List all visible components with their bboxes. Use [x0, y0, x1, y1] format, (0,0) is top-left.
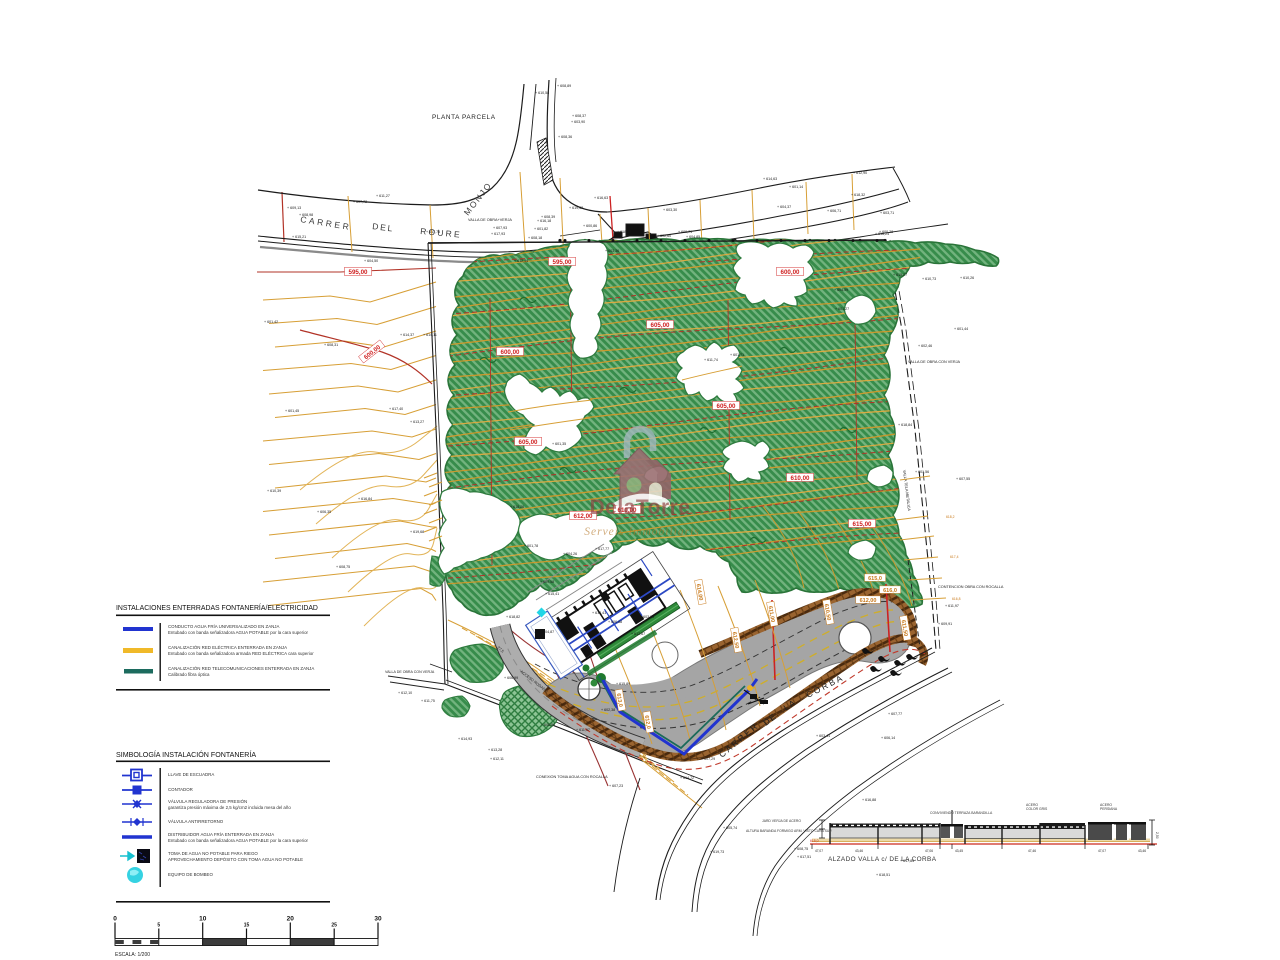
- svg-text:+ 608,89: + 608,89: [557, 84, 571, 88]
- svg-text:+ 604,85: + 604,85: [686, 235, 700, 239]
- svg-text:10: 10: [199, 916, 207, 923]
- svg-text:+ 612,34: + 612,34: [514, 259, 528, 263]
- svg-text:605,00: 605,00: [651, 322, 670, 329]
- svg-text:605,00: 605,00: [519, 439, 538, 446]
- svg-text:+ 601,35: + 601,35: [552, 442, 566, 446]
- svg-text:618,2: 618,2: [946, 515, 955, 519]
- svg-text:+ 612,11: + 612,11: [490, 757, 504, 761]
- svg-text:+ 616,84: + 616,84: [358, 497, 372, 501]
- svg-text:SIMBOLOGÍA INSTALACIÓN FONTANE: SIMBOLOGÍA INSTALACIÓN FONTANERÍA: [116, 750, 256, 759]
- svg-text:+ 604,59: + 604,59: [834, 288, 848, 292]
- svg-text:615,0: 615,0: [810, 839, 819, 843]
- svg-text:+ 603,41: + 603,41: [816, 734, 830, 738]
- svg-text:+ 604,50: + 604,50: [364, 259, 378, 263]
- svg-text:+ 607,93: + 607,93: [493, 226, 507, 230]
- svg-text:+ 615,89: + 615,89: [616, 682, 630, 686]
- svg-text:+ 616,18: + 616,18: [537, 219, 551, 223]
- svg-text:600,00: 600,00: [501, 349, 520, 356]
- svg-text:APROVECHAMIENTO DEPÓSITO CON T: APROVECHAMIENTO DEPÓSITO CON TOMA AGUA N…: [168, 857, 303, 862]
- svg-text:47,07: 47,07: [815, 849, 823, 853]
- svg-text:Entubado con banda señalizador: Entubado con banda señalizadora armada R…: [168, 651, 314, 656]
- svg-text:+ 600,86: + 600,86: [583, 224, 597, 228]
- svg-text:+ 617,75: + 617,75: [426, 230, 440, 234]
- svg-text:0: 0: [113, 916, 117, 923]
- svg-text:+ 614,93: + 614,93: [458, 737, 472, 741]
- svg-text:20: 20: [287, 916, 295, 923]
- svg-text:+ 618,51: + 618,51: [876, 873, 890, 877]
- svg-text:VÁLVULA REGULADORA DE PRESIÓN: VÁLVULA REGULADORA DE PRESIÓN: [168, 799, 247, 804]
- svg-text:+ 609,13: + 609,13: [287, 206, 301, 210]
- svg-text:+ 601,14: + 601,14: [789, 185, 803, 189]
- svg-text:+ 608,75: + 608,75: [794, 847, 808, 851]
- svg-text:617,4: 617,4: [950, 555, 959, 559]
- svg-text:garantiza presión máxima de 2,: garantiza presión máxima de 2,5 kg/cm2 i…: [168, 805, 291, 810]
- svg-text:+ 601,71: + 601,71: [730, 353, 744, 357]
- svg-text:CONTENCION OBRA CON ROCALLA: CONTENCION OBRA CON ROCALLA: [938, 585, 1004, 589]
- svg-text:CONDUCTO AGUA FRÍA UNIVERSALIZ: CONDUCTO AGUA FRÍA UNIVERSALIZADO EN ZAN…: [168, 624, 279, 629]
- svg-text:JARD VERJA DE ACERO: JARD VERJA DE ACERO: [762, 819, 801, 823]
- svg-text:25: 25: [331, 923, 337, 929]
- svg-text:595,00: 595,00: [349, 269, 368, 276]
- svg-text:TOMA DE AGUA NO POTABLE PARA R: TOMA DE AGUA NO POTABLE PARA RIEGO: [168, 851, 258, 856]
- svg-text:+ 606,35: + 606,35: [317, 510, 331, 514]
- svg-text:Calibrado fibra óptica: Calibrado fibra óptica: [168, 672, 210, 677]
- svg-text:+ 617,93: + 617,93: [491, 232, 505, 236]
- svg-text:VÁLVULA ANTIRRETORNO: VÁLVULA ANTIRRETORNO: [168, 819, 224, 824]
- svg-text:VALLA DE OBRA+VERJA: VALLA DE OBRA+VERJA: [468, 218, 512, 222]
- svg-text:Serveis Immobiliaris: Serveis Immobiliaris: [584, 526, 700, 538]
- svg-text:+ 603,90: + 603,90: [571, 120, 585, 124]
- svg-text:5: 5: [157, 923, 160, 929]
- svg-text:+ 608,75: + 608,75: [336, 565, 350, 569]
- svg-text:47,46: 47,46: [1028, 849, 1036, 853]
- svg-text:CANALIZACIÓN RED ELÉCTRICA ENT: CANALIZACIÓN RED ELÉCTRICA ENTERRADA EN …: [168, 645, 287, 650]
- svg-text:INSTALACIONES ENTERRADAS FONTA: INSTALACIONES ENTERRADAS FONTANERÍA/ELEC…: [116, 603, 318, 612]
- svg-text:+ 615,21: + 615,21: [292, 235, 306, 239]
- svg-text:+ 618,26: + 618,26: [510, 505, 524, 509]
- svg-text:+ 600,28: + 600,28: [879, 230, 893, 234]
- svg-text:CONTADOR: CONTADOR: [168, 787, 193, 792]
- svg-text:+ 611,75: + 611,75: [421, 699, 435, 703]
- svg-text:+ 603,71: + 603,71: [880, 211, 894, 215]
- svg-text:CONEXION TOMA AGUA CON ROCALLA: CONEXION TOMA AGUA CON ROCALLA: [536, 775, 608, 779]
- svg-text:43,45: 43,45: [955, 849, 963, 853]
- svg-text:+ 610,39: + 610,39: [267, 489, 281, 493]
- svg-text:+ 619,68: + 619,68: [410, 530, 424, 534]
- svg-text:+ 610,26: + 610,26: [960, 276, 974, 280]
- svg-text:595,00: 595,00: [553, 259, 572, 266]
- svg-text:+ 608,31: + 608,31: [324, 343, 338, 347]
- svg-text:+ 607,55: + 607,55: [956, 477, 970, 481]
- svg-text:+ 604,87: + 604,87: [540, 630, 554, 634]
- svg-text:+ 614,37: + 614,37: [400, 333, 414, 337]
- svg-text:+ 618,84: + 618,84: [898, 423, 912, 427]
- svg-text:+ 604,37: + 604,37: [777, 205, 791, 209]
- svg-text:+ 617,77: + 617,77: [595, 547, 609, 551]
- svg-text:+ 609,58: + 609,58: [540, 580, 554, 584]
- svg-text:+ 618,34: + 618,34: [617, 230, 631, 234]
- svg-text:VALLA DE OBRA CON VERJA: VALLA DE OBRA CON VERJA: [908, 360, 961, 364]
- svg-text:CANALIZACIÓN RED TELECOMUNICAC: CANALIZACIÓN RED TELECOMUNICACIONES ENTE…: [168, 666, 314, 671]
- svg-text:610,00: 610,00: [791, 475, 810, 482]
- svg-text:+ 602,38: + 602,38: [601, 708, 615, 712]
- svg-text:ALTURA BARANDA FORMIGO ARM. VI: ALTURA BARANDA FORMIGO ARM. VISTO CARA S…: [746, 829, 832, 833]
- svg-text:+ 606,99: + 606,99: [504, 676, 518, 680]
- svg-text:+ 607,72: + 607,72: [353, 200, 367, 204]
- svg-text:+ 612,10: + 612,10: [398, 691, 412, 695]
- svg-text:+ 614,41: + 614,41: [592, 611, 606, 615]
- svg-text:+ 602,46: + 602,46: [918, 344, 932, 348]
- svg-text:615,00: 615,00: [853, 521, 872, 528]
- svg-text:+ 618,82: + 618,82: [506, 615, 520, 619]
- svg-text:30: 30: [374, 916, 382, 923]
- svg-text:CONVIVIENDO TERRAZA BARANDILLA: CONVIVIENDO TERRAZA BARANDILLA: [930, 811, 993, 815]
- svg-text:+ 616,63: + 616,63: [594, 196, 608, 200]
- svg-text:+ 611,74: + 611,74: [704, 358, 718, 362]
- svg-text:+ 609,71: + 609,71: [678, 230, 692, 234]
- svg-text:+ 606,14: + 606,14: [881, 736, 895, 740]
- svg-text:+ 615,41: + 615,41: [545, 592, 559, 596]
- svg-text:+ 603,36: + 603,36: [605, 249, 619, 253]
- svg-text:+ 614,59: + 614,59: [628, 226, 642, 230]
- svg-text:+ 608,36: + 608,36: [558, 135, 572, 139]
- svg-text:616,0: 616,0: [883, 588, 897, 594]
- svg-text:Entubado con banda señalizador: Entubado con banda señalizadora AGUA POT…: [168, 630, 309, 635]
- svg-text:+ 608,18: + 608,18: [528, 236, 542, 240]
- svg-text:+ 614,63: + 614,63: [763, 177, 777, 181]
- svg-text:+ 612,67: + 612,67: [631, 632, 645, 636]
- svg-text:COLOR GRIS: COLOR GRIS: [1026, 807, 1048, 811]
- svg-text:+ 601,42: + 601,42: [264, 320, 278, 324]
- svg-text:+ 606,80: + 606,80: [541, 723, 555, 727]
- svg-text:+ 617,40: + 617,40: [389, 407, 403, 411]
- svg-text:+ 607,23: + 607,23: [609, 784, 623, 788]
- svg-text:+ 601,27: + 601,27: [835, 307, 849, 311]
- svg-text:+ 602,60: + 602,60: [657, 234, 671, 238]
- svg-text:605,00: 605,00: [717, 403, 736, 410]
- svg-text:+ 608,37: + 608,37: [572, 114, 586, 118]
- svg-text:2,50: 2,50: [1155, 832, 1159, 839]
- svg-text:15: 15: [244, 923, 250, 929]
- svg-text:+ 613,28: + 613,28: [488, 748, 502, 752]
- svg-text:+ 611,27: + 611,27: [376, 194, 390, 198]
- svg-text:+ 601,82: + 601,82: [534, 227, 548, 231]
- svg-text:+ 606,71: + 606,71: [827, 209, 841, 213]
- svg-text:+ 604,26: + 604,26: [563, 552, 577, 556]
- svg-text:+ 618,32: + 618,32: [851, 193, 865, 197]
- svg-text:+ 610,58: + 610,58: [535, 91, 549, 95]
- svg-text:+ 610,73: + 610,73: [922, 277, 936, 281]
- svg-text:+ 619,50: + 619,50: [802, 527, 816, 531]
- svg-text:DelaTorre: DelaTorre: [590, 496, 691, 519]
- svg-text:PERSIANA: PERSIANA: [1100, 807, 1118, 811]
- svg-text:47,06: 47,06: [925, 849, 933, 853]
- svg-text:+ 603,30: + 603,30: [663, 208, 677, 212]
- svg-text:+ 612,90: + 612,90: [853, 171, 867, 175]
- svg-text:+ 616,88: + 616,88: [862, 798, 876, 802]
- svg-text:43,46: 43,46: [1138, 849, 1146, 853]
- svg-text:+ 615,27: + 615,27: [893, 273, 907, 277]
- svg-text:+ 606,68: + 606,68: [608, 620, 622, 624]
- svg-text:+ 601,56: + 601,56: [915, 470, 929, 474]
- svg-text:+ 617,51: + 617,51: [797, 855, 811, 859]
- svg-text:+ 611,97: + 611,97: [576, 728, 590, 732]
- svg-text:+ 601,44: + 601,44: [954, 327, 968, 331]
- svg-text:+ 614,72: + 614,72: [680, 776, 694, 780]
- svg-text:DISTRIBUIDOR AGUA FRÍA ENTERRA: DISTRIBUIDOR AGUA FRÍA ENTERRADA EN ZANJ…: [168, 832, 274, 837]
- svg-text:Entubado con banda señalizador: Entubado con banda señalizadora AGUA POT…: [168, 838, 309, 843]
- svg-text:+ 601,78: + 601,78: [524, 544, 538, 548]
- svg-text:+ 607,77: + 607,77: [888, 712, 902, 716]
- svg-text:+ 607,29: + 607,29: [701, 757, 715, 761]
- svg-text:+ 609,91: + 609,91: [938, 622, 952, 626]
- svg-text:+ 613,27: + 613,27: [410, 420, 424, 424]
- svg-text:+ 603,29: + 603,29: [640, 615, 654, 619]
- svg-text:43,46: 43,46: [855, 849, 863, 853]
- svg-text:+ 619,73: + 619,73: [710, 850, 724, 854]
- svg-text:612,00: 612,00: [860, 598, 877, 604]
- svg-text:+ 619,33: + 619,33: [569, 206, 583, 210]
- svg-text:600,00: 600,00: [781, 269, 800, 276]
- svg-text:EQUIPO DE BOMBEO: EQUIPO DE BOMBEO: [168, 872, 213, 877]
- svg-text:+ 611,97: + 611,97: [945, 604, 959, 608]
- svg-text:616,8: 616,8: [952, 597, 961, 601]
- svg-text:PLANTA PARCELA: PLANTA PARCELA: [432, 114, 496, 121]
- svg-text:+ 605,74: + 605,74: [723, 826, 737, 830]
- svg-text:615,0: 615,0: [868, 576, 882, 582]
- svg-text:VALLA DE OBRA CON VERJA: VALLA DE OBRA CON VERJA: [385, 670, 435, 674]
- svg-text:ESCALA: 1/200: ESCALA: 1/200: [115, 952, 150, 958]
- svg-text:+ 608,98: + 608,98: [299, 213, 313, 217]
- svg-text:47,07: 47,07: [1098, 849, 1106, 853]
- svg-text:+ 601,45: + 601,45: [285, 409, 299, 413]
- svg-text:LLAVE DE ESCUADRA: LLAVE DE ESCUADRA: [168, 772, 214, 777]
- svg-text:+ 614,11: + 614,11: [423, 333, 437, 337]
- svg-text:ALZADO VALLA c/ DE LA CORBA: ALZADO VALLA c/ DE LA CORBA: [828, 856, 937, 863]
